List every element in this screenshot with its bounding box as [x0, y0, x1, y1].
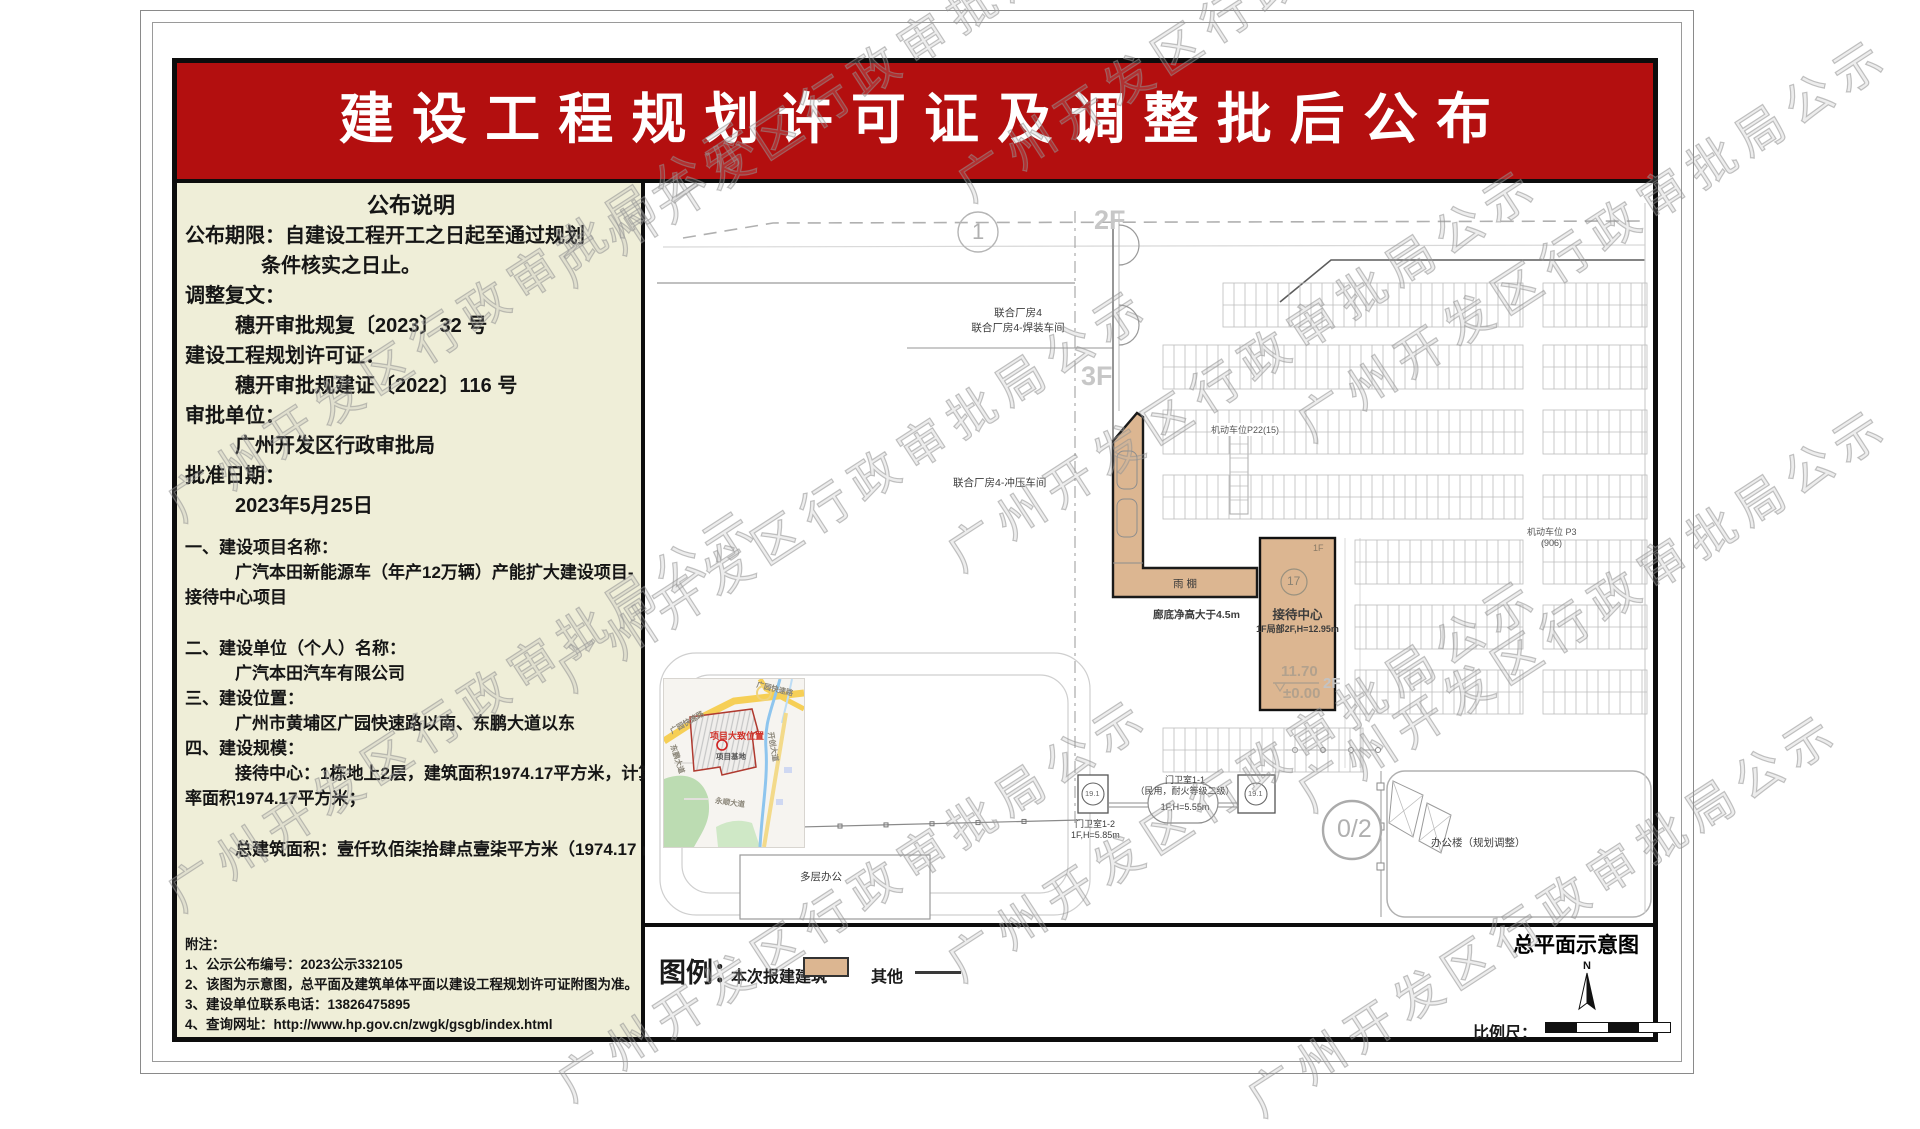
- legend-other-label: 其他: [871, 963, 903, 987]
- notice-line: 一、建设项目名称：: [185, 535, 637, 560]
- notice-line: 总建筑面积：壹仟玖佰柒拾肆点壹柒平方米（1974.17 ㎡）。: [185, 837, 637, 862]
- label-parking-p22: 机动车位P22(15): [1211, 423, 1279, 436]
- label-gatehouse2-line2: 1F,H=5.85m: [1071, 830, 1120, 840]
- label-gate-circle-b: 19.1: [1248, 789, 1263, 798]
- label-reception-name: 接待中心: [1262, 604, 1333, 623]
- label-gate-circle-a: 19.1: [1085, 789, 1100, 798]
- label-elevation-top: 11.70: [1281, 663, 1318, 680]
- notice-line: 广州开发区行政审批局: [185, 431, 637, 461]
- notice-line: 广汽本田汽车有限公司: [185, 661, 637, 686]
- label-floor-2f: 2F: [1094, 205, 1126, 236]
- notice-line: 审批单位：: [185, 401, 637, 431]
- notice-line: 公布说明: [185, 191, 637, 221]
- label-gatehouse1-line3: 1F,H=5.55m: [1157, 802, 1213, 812]
- notice-line: 广州市黄埔区广园快速路以南、东鹏大道以东: [185, 711, 637, 736]
- label-elevation-bottom: ±0.00: [1283, 685, 1320, 702]
- notice-line: 四、建设规模：: [185, 736, 637, 761]
- label-office-adjust: 办公楼（规划调整）: [1431, 835, 1526, 850]
- notice-panel: 公布说明公布期限：自建设工程开工之日起至通过规划条件核实之日止。调整复文：穗开审…: [177, 183, 645, 1037]
- label-reception-circle: 17: [1287, 574, 1300, 588]
- locator-map-drawing: [664, 679, 804, 847]
- legend-strip: 总平面示意图 图例： 本次报建建筑 其他 比例尺： N: [645, 923, 1653, 1037]
- footnote-line: 2、该图为示意图，总平面及建筑单体平面以建设工程规划许可证附图为准。: [185, 975, 637, 995]
- notice-line: 广汽本田新能源车（年产12万辆）产能扩大建设项目-: [185, 560, 637, 585]
- label-workshop-line2: 联合厂房4-焊装车间: [933, 320, 1103, 335]
- label-workshop-stamping: 联合厂房4-冲压车间: [953, 475, 1046, 490]
- label-reception-1f: 1F: [1313, 543, 1324, 553]
- label-map-site: 项目基地: [716, 751, 746, 762]
- footnote-line: 附注：: [185, 935, 637, 955]
- scale-bar: [1545, 1022, 1671, 1033]
- notice-line: 接待中心：1栋地上2层，建筑面积1974.17平方米，计算容积: [185, 761, 637, 786]
- legend-new-building-swatch: [803, 957, 849, 977]
- notice-line: 2023年5月25日: [185, 491, 637, 521]
- locator-map: 项目大致位置 项目基地 广园快速路 广园快速路 东鹏大道 开创大道 永顺大道: [663, 678, 805, 848]
- notice-line: 调整复文：: [185, 281, 637, 311]
- notice-line: 公布期限：自建设工程开工之日起至通过规划: [185, 221, 637, 251]
- label-gatehouse2-line1: 门卫室1-2: [1075, 817, 1115, 830]
- legend-label: 图例：: [659, 951, 740, 990]
- label-map-note: 项目大致位置: [710, 729, 764, 742]
- footnote-line: 4、查询网址：http://www.hp.gov.cn/zwgk/gsgb/in…: [185, 1015, 637, 1035]
- label-canopy-clearance: 廊底净高大于4.5m: [1153, 607, 1240, 622]
- label-canopy: 雨棚: [1173, 576, 1200, 591]
- document-frame: 建设工程规划许可证及调整批后公布 公布说明公布期限：自建设工程开工之日起至通过规…: [172, 58, 1658, 1042]
- notice-line: 批准日期：: [185, 461, 637, 491]
- notice-footnotes: 附注：1、公示公布编号：2023公示3321052、该图为示意图，总平面及建筑单…: [185, 935, 637, 1035]
- footnote-line: 3、建设单位联系电话：13826475895: [185, 995, 637, 1015]
- north-arrow-icon: N: [1573, 959, 1601, 1017]
- north-letter: N: [1583, 960, 1591, 972]
- page-title: 建设工程规划许可证及调整批后公布: [177, 63, 1653, 175]
- label-floor-3f: 3F: [1081, 361, 1113, 392]
- notice-line: 率面积1974.17平方米；: [185, 786, 637, 811]
- notice-line: 建设工程规划许可证：: [185, 341, 637, 371]
- title-banner: 建设工程规划许可证及调整批后公布: [177, 63, 1653, 183]
- label-multi-office: 多层办公: [800, 869, 842, 884]
- footnote-line: 1、公示公布编号：2023公示332105: [185, 955, 637, 975]
- label-reception-2f: 2F: [1323, 675, 1341, 692]
- notice-line: 条件核实之日止。: [185, 251, 637, 281]
- label-parking-p3-1: 机动车位 P3: [1527, 525, 1577, 538]
- label-grid-circle-1: 1: [972, 219, 984, 245]
- plan-caption: 总平面示意图: [1339, 929, 1639, 959]
- notice-line: 穗开审批规复〔2023〕32 号: [185, 311, 637, 341]
- label-circle-02: 0/2: [1337, 815, 1372, 844]
- label-parking-p3-2: (906): [1541, 538, 1562, 548]
- scale-label: 比例尺：: [1473, 1019, 1537, 1043]
- notice-lines: 公布说明公布期限：自建设工程开工之日起至通过规划条件核实之日止。调整复文：穗开审…: [185, 191, 637, 862]
- notice-line: 二、建设单位（个人）名称：: [185, 636, 637, 661]
- notice-page: { "doc": { "title": "建设工程规划许可证及调整批后公布", …: [0, 0, 1920, 1080]
- notice-line: 穗开审批规建证〔2022〕116 号: [185, 371, 637, 401]
- label-workshop-line1: 联合厂房4: [963, 305, 1073, 320]
- notice-line: 三、建设位置：: [185, 686, 637, 711]
- notice-line: 接待中心项目: [185, 585, 637, 610]
- legend-other-line: [915, 971, 961, 974]
- label-gatehouse1-line2: （民用，耐火等级二级）: [1135, 784, 1235, 797]
- label-reception-spec: 1F局部2F,H=12.95m: [1255, 622, 1340, 635]
